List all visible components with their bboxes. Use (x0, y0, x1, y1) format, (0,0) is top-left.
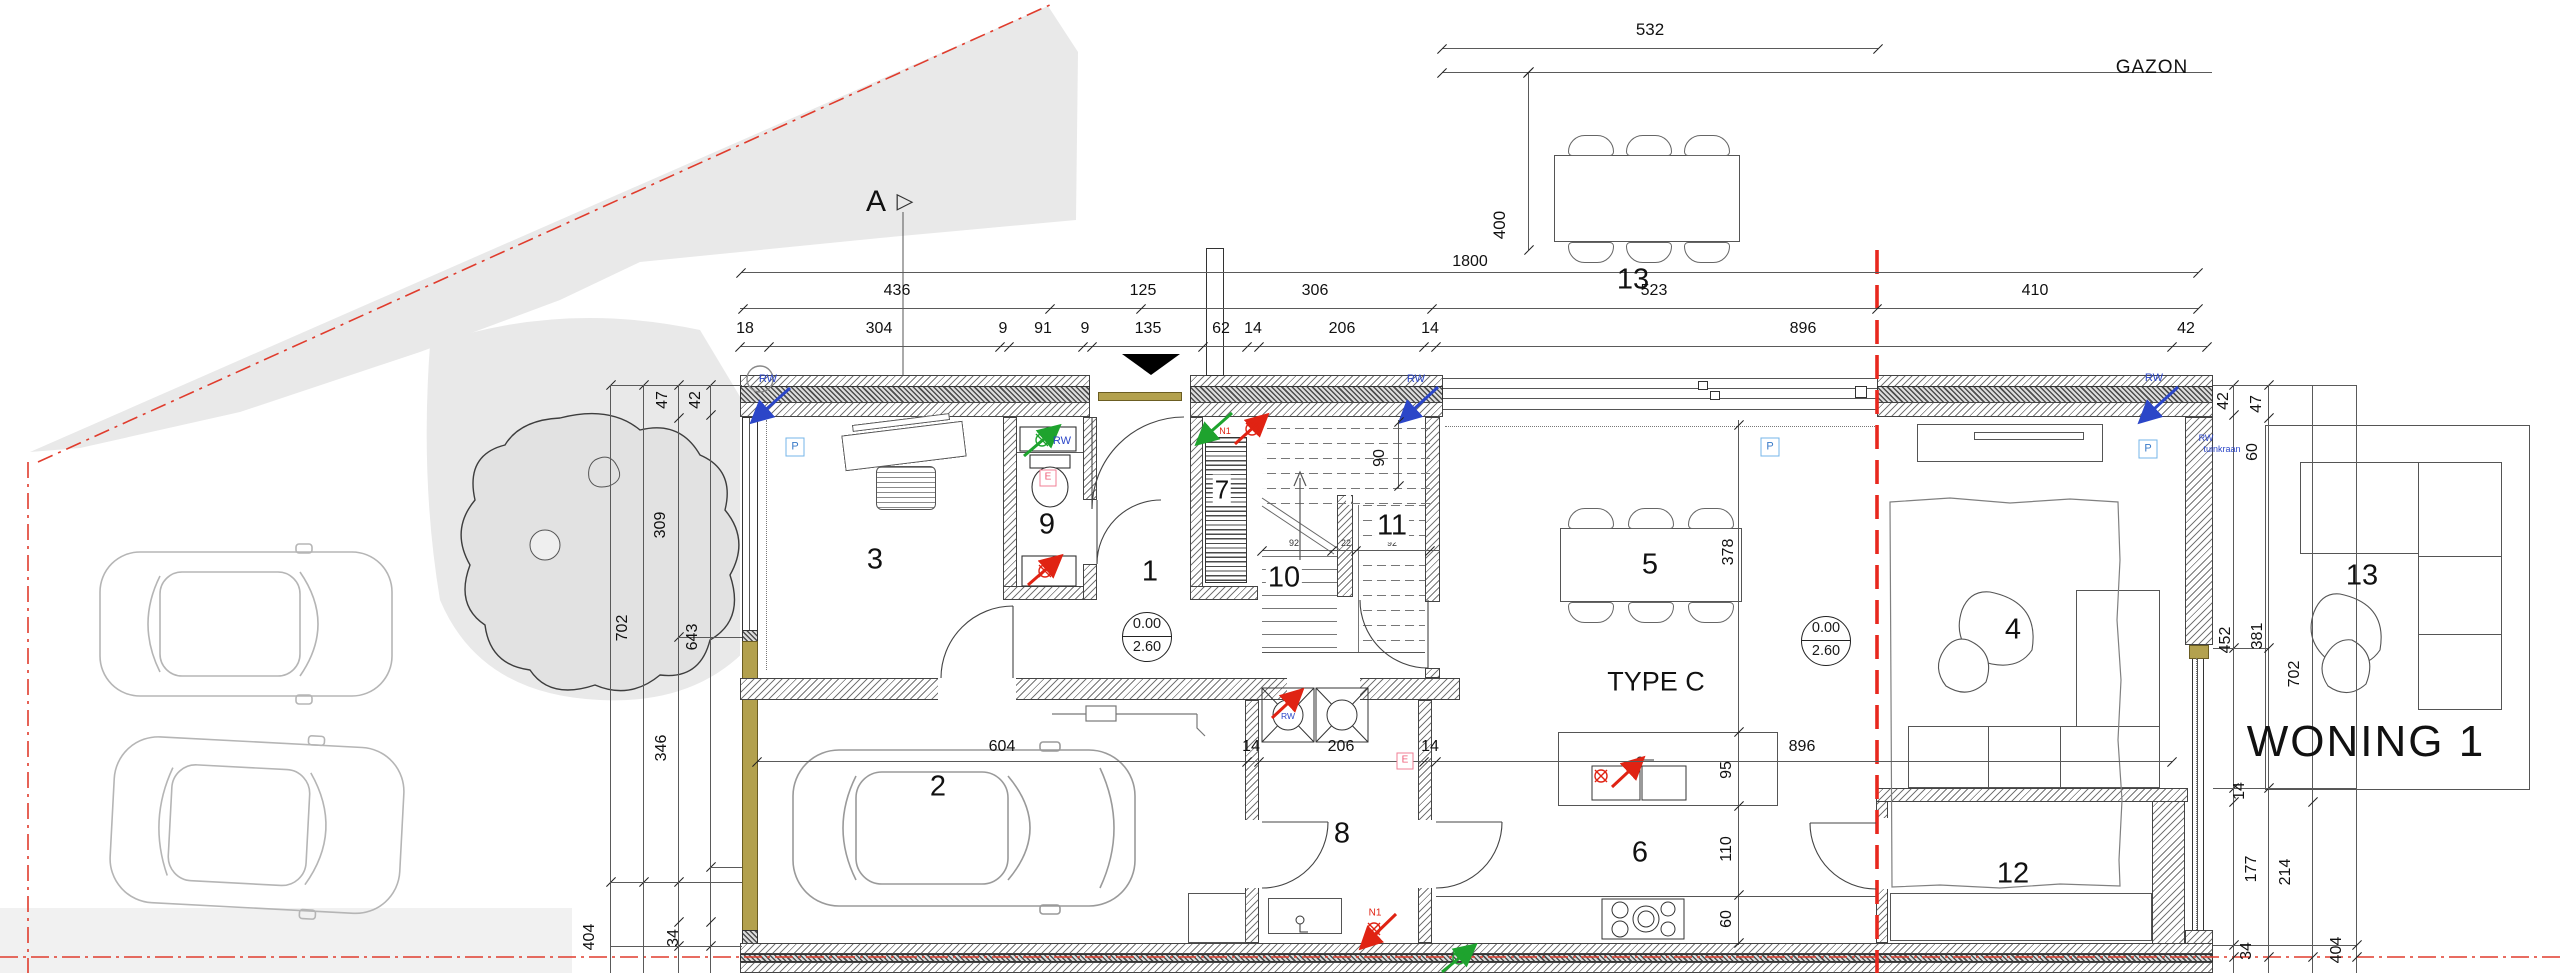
section-marker-label: A (866, 185, 886, 219)
flue-stack (1206, 248, 1224, 376)
wall-top-inner-d (1877, 402, 2213, 417)
room-number-6: 6 (1632, 837, 1648, 870)
garden-table (1554, 155, 1740, 242)
room-number-4: 4 (2005, 614, 2021, 647)
wall-bottom-outer (740, 943, 2213, 954)
dim-label: 14 (1421, 738, 1439, 756)
sideboard-slot (1974, 432, 2084, 440)
dim-label: 702 (614, 615, 632, 642)
dim-label: 22 (1341, 538, 1351, 548)
tree-trunk (530, 530, 560, 560)
wall-room12-right (2152, 800, 2185, 945)
dim-label: 95 (1718, 761, 1736, 779)
ext-left-882 (610, 882, 742, 883)
dim-label: 18 (736, 320, 754, 338)
window-living-frame-outer (1443, 378, 1877, 379)
wall-right-wood (2189, 645, 2209, 659)
dim-label: 14 (1421, 320, 1439, 338)
rw-label-room8: RW (1281, 711, 1295, 721)
dim-line-kitchen (1738, 420, 1739, 945)
garden-chair (1568, 135, 1614, 156)
desk-chair (876, 466, 936, 510)
wall-room9-right-upper (1083, 417, 1097, 500)
level-marker-hall: 0.00 2.60 (1122, 612, 1172, 662)
window-living-mullion-3 (1855, 386, 1867, 398)
room-number-1: 1 (1142, 556, 1158, 589)
dotted-living-window (1445, 426, 1875, 427)
dim-label: 47 (654, 391, 672, 409)
entrance-arrow (1122, 354, 1180, 375)
dim-line-row2 (740, 346, 2207, 347)
dim-line-right-4 (2356, 385, 2357, 973)
wall-shaft-bottom (1190, 586, 1258, 600)
wall-left-cap-bottom (742, 930, 758, 944)
dim-line-left-4 (710, 385, 711, 973)
dim-line-right-2 (2268, 385, 2269, 973)
wall-bottom-insulation (740, 954, 2213, 962)
wall-top-inner-b (1190, 402, 1443, 417)
dim-label: 177 (2243, 856, 2261, 883)
terrain-strip-bottom (0, 908, 572, 973)
dim-line-stair-90 (1398, 420, 1399, 488)
rw-label-left: RW (759, 373, 777, 385)
dim-label: 92 (1289, 538, 1299, 548)
gazon-label: GAZON (2116, 57, 2189, 79)
window-living-mullion-1 (1698, 381, 1708, 390)
shelf-room12 (1890, 893, 2152, 941)
section-marker-glyph: ▷ (897, 188, 914, 214)
terrace-sofa-line1 (2418, 556, 2502, 557)
room-number-12: 12 (1997, 858, 2029, 891)
rw-label-mid: RW (1407, 373, 1425, 385)
building-floor (740, 375, 2213, 973)
terrace-sofa-line2 (2418, 634, 2502, 635)
dim-line-terrace-532 (1442, 48, 1878, 49)
room9-niche-line (1017, 452, 1083, 453)
dotted-right-window (2196, 658, 2197, 930)
rw-tuinkraan-label-2: tuinkraan (2203, 444, 2240, 454)
sofa-room4-divider2 (2060, 726, 2061, 788)
rw-label-room9: RW (1053, 435, 1071, 447)
stair-divider-line (1358, 505, 1359, 652)
wall-room12-top (1876, 788, 2188, 802)
dim-label: 404 (2328, 937, 2346, 964)
parked-car-1 (100, 544, 392, 704)
wall-right-corner-bottom (2185, 930, 2213, 944)
dim-label: 62 (1212, 320, 1230, 338)
garden-chair (1684, 135, 1730, 156)
wall-top-insulation-d (1877, 386, 2213, 403)
level-floor: 0.00 (1133, 616, 1161, 632)
room-number-7: 7 (1213, 475, 1231, 506)
dim-label: 896 (1790, 320, 1817, 338)
woning-label: WONING 1 (2247, 717, 2485, 767)
dim-label: 34 (2238, 942, 2256, 960)
kitchen-island (1558, 732, 1778, 806)
dim-label: 381 (2249, 623, 2267, 650)
dim-label: 42 (2215, 392, 2233, 410)
dim-label: 346 (653, 735, 671, 762)
dim-label: 436 (884, 282, 911, 300)
p-box-living: P (1761, 438, 1780, 457)
floor-plan-canvas: 436 125 306 523 410 18 304 9 91 9 135 62… (0, 0, 2560, 973)
e-box-room8: E (1397, 753, 1414, 770)
p-letter: P (1766, 441, 1773, 453)
p-box-room3: P (786, 438, 805, 457)
dim-label: 14 (2231, 782, 2249, 800)
wall-stair-right-stub (1425, 668, 1440, 678)
dim-label: 304 (866, 320, 893, 338)
dim-label: 9 (999, 320, 1008, 338)
terrace-sofa-right (2418, 462, 2502, 710)
level-ceiling: 2.60 (1133, 639, 1161, 655)
entrance-threshold (1098, 392, 1182, 401)
dim-line-left-1 (610, 385, 611, 973)
wall-top-insulation-b (1190, 386, 1443, 403)
dim-label: 206 (1328, 738, 1355, 756)
dim-label: 214 (2277, 859, 2295, 886)
opening-hall-room8 (1287, 678, 1360, 700)
dim-label: 135 (1135, 320, 1162, 338)
wall-room9-left (1003, 417, 1017, 600)
dim-label: 452 (2217, 627, 2235, 654)
dim-line-right-1 (2233, 385, 2234, 973)
dining-chair (1628, 508, 1674, 529)
dim-label: 60 (1718, 910, 1736, 928)
dim-label: 206 (1329, 320, 1356, 338)
window-living-glazing-2 (1443, 398, 1877, 399)
p-letter: P (2144, 443, 2151, 455)
room-number-9: 9 (1039, 509, 1055, 542)
dim-label: 14 (1242, 738, 1260, 756)
dim-line-mid (757, 761, 2172, 762)
dim-label-terrace-depth: 400 (1490, 211, 1510, 239)
dim-label-terrace-width: 532 (1636, 20, 1664, 40)
window-right-wall (2192, 659, 2204, 931)
dim-label: 42 (2177, 320, 2195, 338)
dim-label: 404 (581, 924, 599, 951)
dim-label: 9 (1081, 320, 1090, 338)
n1-label-shaft: N1 (1219, 426, 1231, 436)
dim-line-left-2 (643, 385, 644, 973)
table-room8 (1268, 898, 1342, 934)
dim-label: 110 (1718, 836, 1736, 862)
sideboard-room4 (1917, 424, 2103, 462)
dim-label: 643 (684, 624, 702, 651)
dim-line-overall (741, 272, 2198, 273)
room-number-8: 8 (1334, 818, 1350, 851)
dim-line-left-3 (678, 385, 679, 973)
dim-label: 60 (2244, 443, 2262, 461)
sofa-room4-back (2076, 590, 2160, 730)
wall-top-inner-a (740, 402, 1090, 417)
window-living-mullion-2 (1710, 391, 1720, 400)
room-number-13-garden: 13 (1617, 264, 1649, 297)
sofa-room4-seats (1908, 726, 2160, 788)
n1-label-room8: N1 (1369, 908, 1382, 919)
type-label: TYPE C (1607, 667, 1705, 698)
e-box-room9: E (1040, 470, 1057, 487)
dim-label: 90 (1371, 449, 1389, 467)
window-living-glazing-1 (1443, 388, 1877, 389)
shaft-louvres (1205, 437, 1247, 583)
room-number-5: 5 (1642, 549, 1658, 582)
parked-car-2 (107, 726, 406, 924)
dim-line-stair-row (1262, 550, 1440, 551)
room-number-11: 11 (1375, 510, 1409, 543)
stair-end-line (1262, 652, 1425, 653)
wall-shaft-left (1190, 417, 1203, 600)
e-letter: E (1402, 755, 1409, 766)
dim-label: 14 (1244, 320, 1262, 338)
dotted-left-wall (766, 420, 767, 670)
dim-label: 91 (1034, 320, 1052, 338)
dim-label: 896 (1789, 738, 1816, 756)
level-marker-living: 0.00 2.60 (1801, 616, 1851, 666)
stair-upper-flight-dashed (1262, 428, 1430, 505)
dining-chair (1688, 508, 1734, 529)
dim-label: 34 (665, 929, 683, 947)
door-gap-kitchen-room12 (1876, 818, 1888, 889)
p-box-room4: P (2139, 440, 2158, 459)
dim-label: 125 (1130, 282, 1157, 300)
dim-label: 309 (652, 512, 670, 539)
window-left-wall (742, 417, 758, 632)
wall-bottom-inner (740, 962, 2213, 973)
dim-line-row1 (740, 308, 2198, 309)
sofa-room4-divider1 (1988, 726, 1989, 788)
dim-label: 604 (989, 738, 1016, 756)
dim-line-right-3 (2312, 385, 2313, 973)
level-ceiling: 2.60 (1812, 643, 1840, 659)
dim-label: 42 (687, 391, 705, 409)
room-number-10: 10 (1266, 562, 1302, 595)
dim-line-terrace-base (1442, 72, 2212, 73)
dim-label: 306 (1302, 282, 1329, 300)
room-number-13-terrace: 13 (2346, 560, 2378, 593)
garden-chair (1626, 135, 1672, 156)
cupboard-garage (1188, 893, 1246, 943)
level-floor: 0.00 (1812, 620, 1840, 636)
door-gap-room8-kitchen (1418, 820, 1432, 888)
ext-left-867 (710, 867, 742, 868)
room-number-3: 3 (867, 544, 883, 577)
ext-left-top (610, 385, 742, 386)
dim-label: 702 (2286, 661, 2304, 688)
wall-top-insulation-a (740, 386, 1090, 403)
room-number-2: 2 (930, 771, 946, 804)
kitchen-counter-line (1436, 896, 1877, 897)
rw-label-right: RW (2145, 372, 2163, 384)
rw-tuinkraan-label-1: RW (2199, 433, 2214, 443)
dim-label: 47 (2248, 395, 2266, 413)
wall-room9-right-lower (1083, 564, 1097, 600)
e-letter: E (1045, 472, 1052, 483)
dim-label: 378 (1720, 539, 1738, 566)
dining-chair (1568, 508, 1614, 529)
window-living-frame-inner (1443, 409, 1877, 410)
dim-line-terrace-400 (1528, 72, 1529, 250)
p-letter: P (791, 441, 798, 453)
dim-label: 410 (2022, 282, 2049, 300)
ext-right-top (2213, 385, 2356, 386)
door-gap-hall-room3 (938, 678, 1016, 700)
door-gap-garage-room8 (1245, 820, 1259, 888)
dim-label-overall: 1800 (1452, 253, 1488, 271)
